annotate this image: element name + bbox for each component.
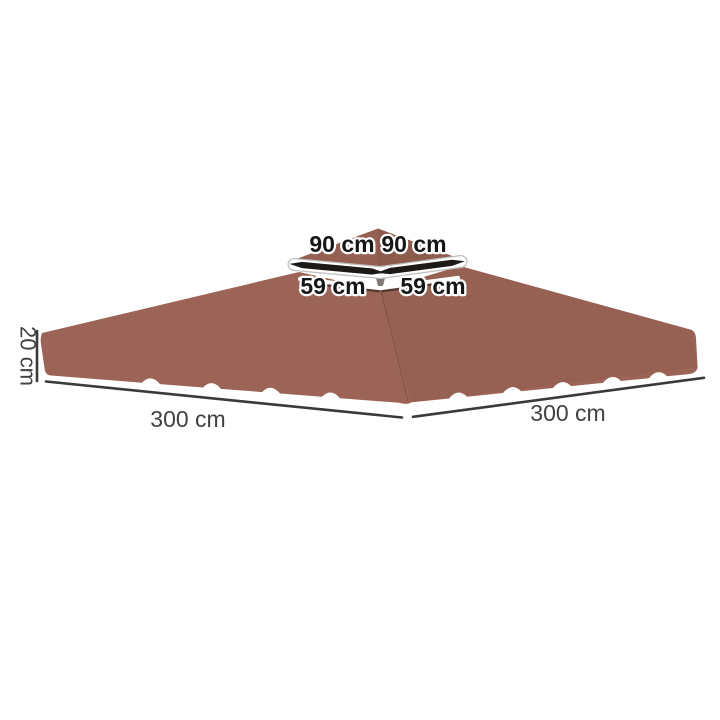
label-59cm-left: 59 cm bbox=[300, 273, 365, 299]
label-90cm-right: 90 cm bbox=[381, 231, 446, 257]
label-300cm-right: 300 cm bbox=[530, 400, 605, 426]
diagram-canvas: 90 cm 90 cm 59 cm 59 cm 20 cm 300 cm 300… bbox=[0, 0, 720, 720]
label-90cm-left: 90 cm bbox=[309, 231, 374, 257]
label-300cm-left: 300 cm bbox=[150, 406, 225, 432]
canopy-dimension-diagram: 90 cm 90 cm 59 cm 59 cm 20 cm 300 cm 300… bbox=[0, 0, 720, 720]
label-20cm: 20 cm bbox=[16, 326, 41, 386]
label-59cm-right: 59 cm bbox=[400, 273, 465, 299]
